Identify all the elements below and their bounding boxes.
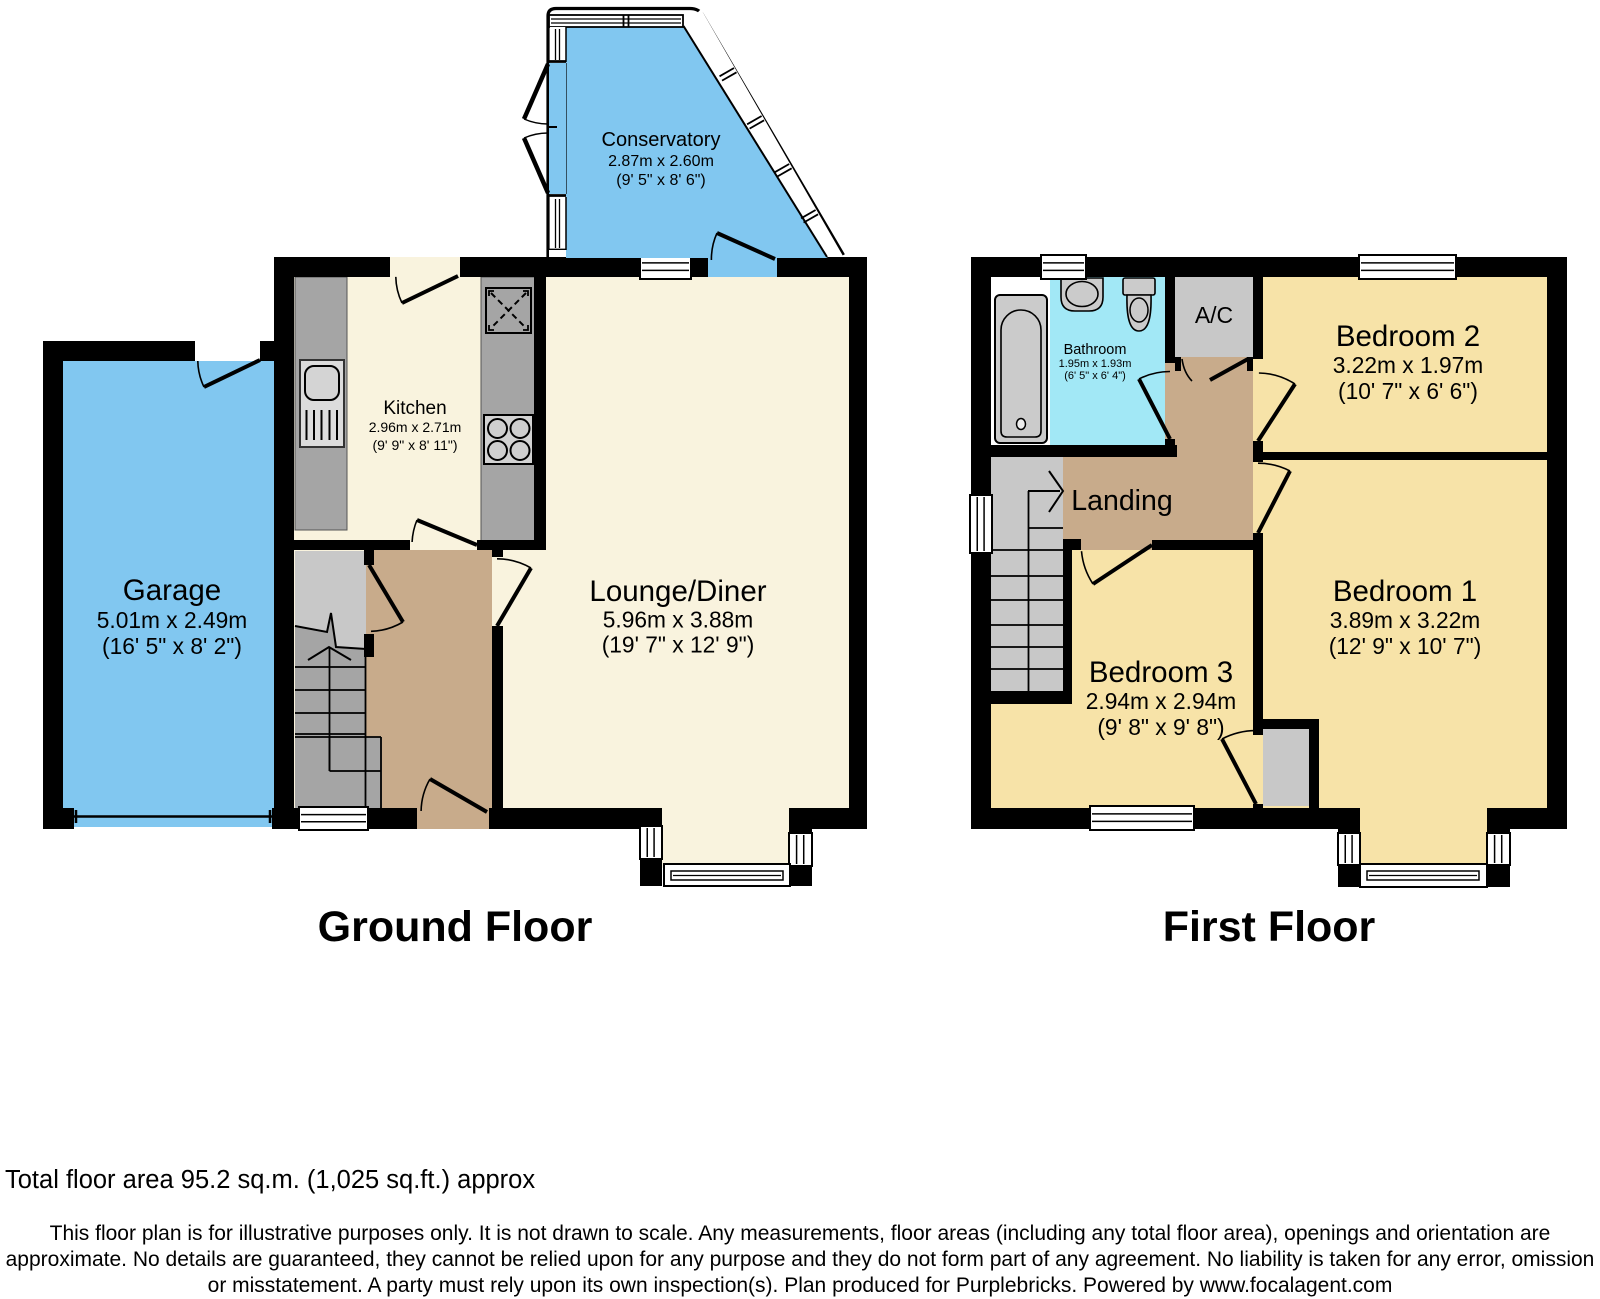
svg-text:(12' 9" x 10' 7"): (12' 9" x 10' 7"): [1329, 633, 1482, 659]
svg-text:3.22m x 1.97m: 3.22m x 1.97m: [1333, 352, 1483, 378]
svg-text:(16' 5" x 8' 2"): (16' 5" x 8' 2"): [102, 633, 242, 659]
svg-text:Conservatory: Conservatory: [602, 129, 721, 151]
svg-text:(19' 7" x 12' 9"): (19' 7" x 12' 9"): [602, 632, 755, 658]
svg-text:Total floor area 95.2 sq.m. (1: Total floor area 95.2 sq.m. (1,025 sq.ft…: [5, 1166, 535, 1194]
svg-text:3.89m x 3.22m: 3.89m x 3.22m: [1330, 607, 1480, 633]
svg-text:Bedroom 3: Bedroom 3: [1089, 656, 1233, 689]
svg-text:5.01m x 2.49m: 5.01m x 2.49m: [97, 607, 247, 633]
svg-text:Lounge/Diner: Lounge/Diner: [589, 575, 766, 608]
svg-text:2.96m x 2.71m: 2.96m x 2.71m: [369, 419, 462, 435]
svg-text:Kitchen: Kitchen: [383, 398, 446, 419]
svg-text:2.94m x 2.94m: 2.94m x 2.94m: [1086, 688, 1236, 714]
svg-text:A/C: A/C: [1195, 302, 1233, 328]
svg-text:or misstatement. A party must: or misstatement. A party must rely upon …: [208, 1274, 1393, 1297]
svg-text:Ground Floor: Ground Floor: [318, 903, 593, 951]
svg-text:2.87m x 2.60m: 2.87m x 2.60m: [608, 153, 714, 170]
svg-text:(9' 9" x 8' 11"): (9' 9" x 8' 11"): [372, 437, 457, 453]
svg-text:Bedroom 1: Bedroom 1: [1333, 575, 1477, 608]
svg-text:(6' 5" x 6' 4"): (6' 5" x 6' 4"): [1064, 370, 1126, 382]
svg-text:1.95m x 1.93m: 1.95m x 1.93m: [1059, 358, 1132, 370]
svg-text:Garage: Garage: [123, 574, 221, 607]
svg-text:Bedroom 2: Bedroom 2: [1336, 320, 1480, 353]
svg-text:Bathroom: Bathroom: [1064, 342, 1127, 358]
svg-text:Landing: Landing: [1071, 485, 1172, 517]
svg-text:approximate. No details are gu: approximate. No details are guaranteed, …: [6, 1248, 1595, 1271]
svg-text:First Floor: First Floor: [1163, 903, 1376, 951]
svg-text:5.96m x 3.88m: 5.96m x 3.88m: [603, 607, 753, 633]
svg-text:(9' 8" x 9' 8"): (9' 8" x 9' 8"): [1097, 714, 1224, 740]
svg-text:This floor plan is for illustr: This floor plan is for illustrative purp…: [50, 1222, 1551, 1245]
svg-text:(9' 5" x 8' 6"): (9' 5" x 8' 6"): [616, 172, 706, 189]
svg-text:(10' 7" x 6' 6"): (10' 7" x 6' 6"): [1338, 378, 1478, 404]
